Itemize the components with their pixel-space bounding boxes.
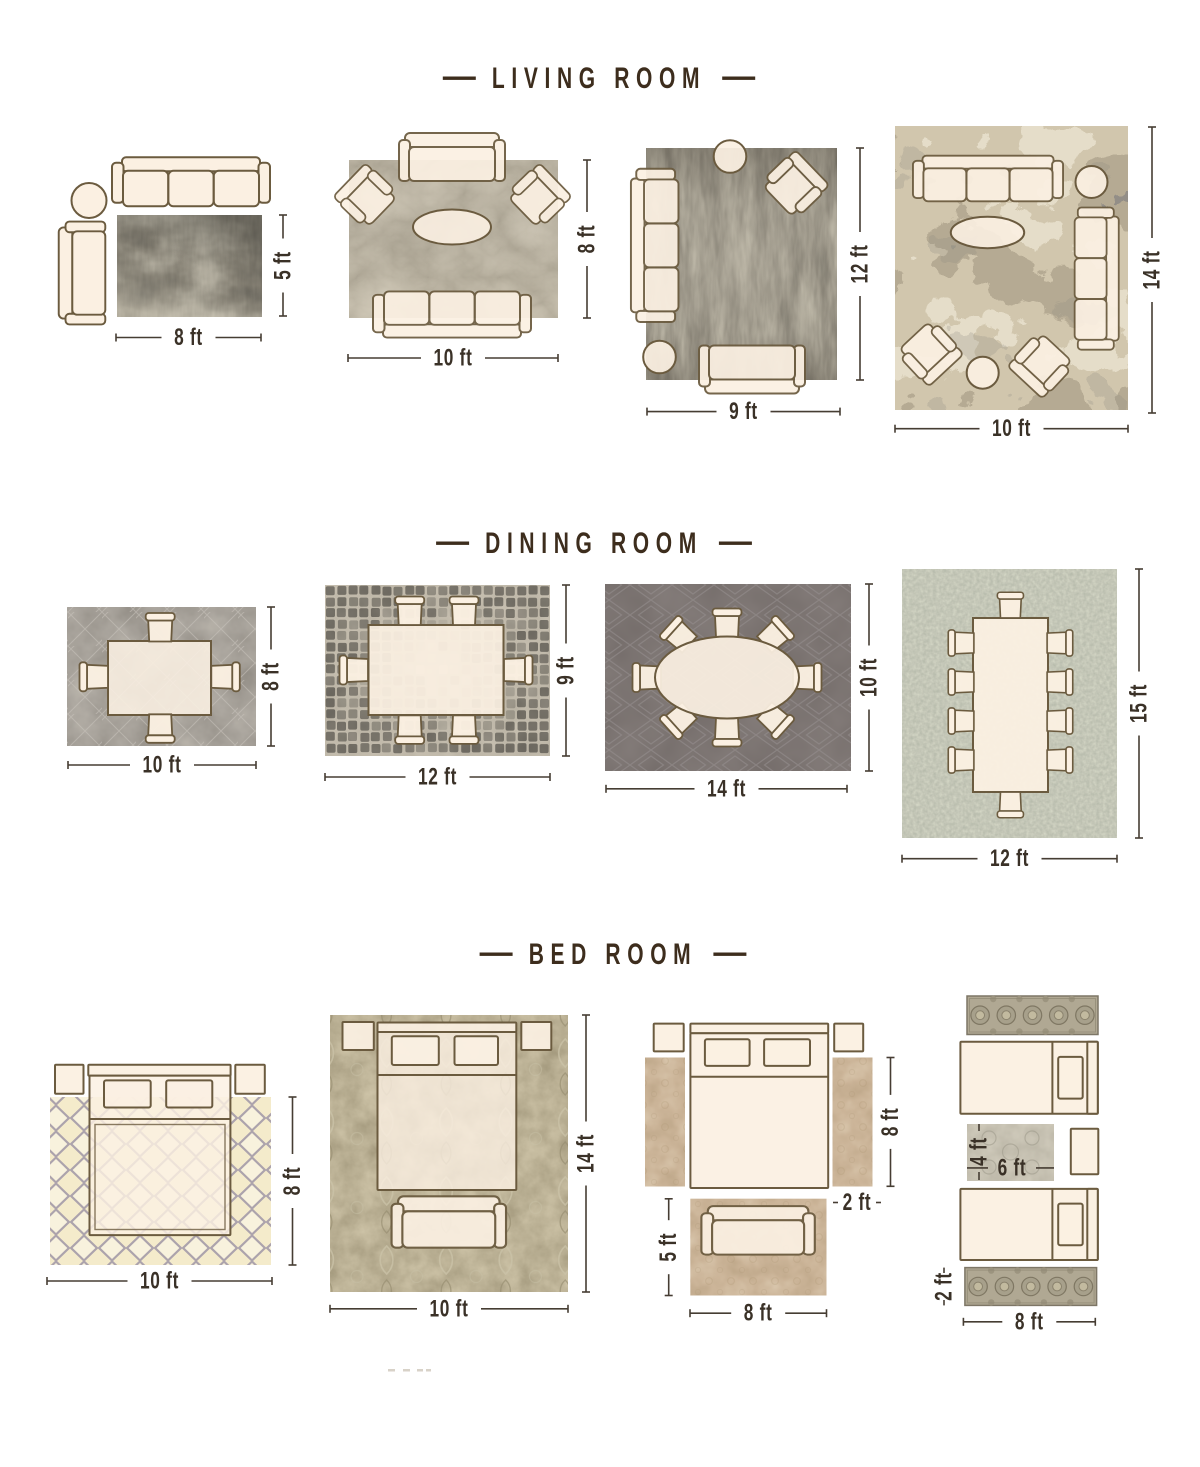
svg-text:8 ft: 8 ft bbox=[877, 1107, 903, 1136]
svg-text:8 ft: 8 ft bbox=[279, 1167, 305, 1196]
svg-text:5 ft: 5 ft bbox=[270, 251, 296, 280]
svg-text:10 ft: 10 ft bbox=[433, 345, 472, 371]
svg-text:6 ft: 6 ft bbox=[998, 1155, 1027, 1181]
svg-text:10 ft: 10 ft bbox=[429, 1296, 468, 1322]
svg-text:8 ft: 8 ft bbox=[258, 662, 284, 691]
svg-text:BED ROOM: BED ROOM bbox=[529, 939, 698, 971]
svg-text:8 ft: 8 ft bbox=[174, 324, 203, 350]
svg-text:8 ft: 8 ft bbox=[1015, 1309, 1044, 1335]
svg-text:14 ft: 14 ft bbox=[573, 1134, 599, 1173]
svg-text:8 ft: 8 ft bbox=[574, 225, 600, 254]
svg-text:4 ft: 4 ft bbox=[966, 1137, 992, 1166]
svg-text:5 ft: 5 ft bbox=[656, 1233, 682, 1262]
svg-text:12 ft: 12 ft bbox=[847, 244, 873, 283]
svg-text:12 ft: 12 ft bbox=[418, 764, 457, 790]
svg-text:2 ft: 2 ft bbox=[843, 1189, 872, 1215]
svg-text:15 ft: 15 ft bbox=[1126, 684, 1152, 723]
svg-text:12 ft: 12 ft bbox=[990, 846, 1029, 872]
svg-text:DINING ROOM: DINING ROOM bbox=[485, 528, 703, 560]
svg-text:10 ft: 10 ft bbox=[140, 1268, 179, 1294]
svg-text:14 ft: 14 ft bbox=[1139, 250, 1165, 289]
svg-text:10 ft: 10 ft bbox=[142, 752, 181, 778]
svg-text:9 ft: 9 ft bbox=[729, 398, 758, 424]
svg-text:9 ft: 9 ft bbox=[553, 656, 579, 685]
svg-text:2 ft: 2 ft bbox=[931, 1272, 957, 1301]
svg-text:10 ft: 10 ft bbox=[856, 658, 882, 697]
svg-text:10 ft: 10 ft bbox=[992, 416, 1031, 442]
svg-text:LIVING ROOM: LIVING ROOM bbox=[492, 63, 706, 95]
svg-text:8 ft: 8 ft bbox=[744, 1300, 773, 1326]
svg-text:14 ft: 14 ft bbox=[707, 776, 746, 802]
